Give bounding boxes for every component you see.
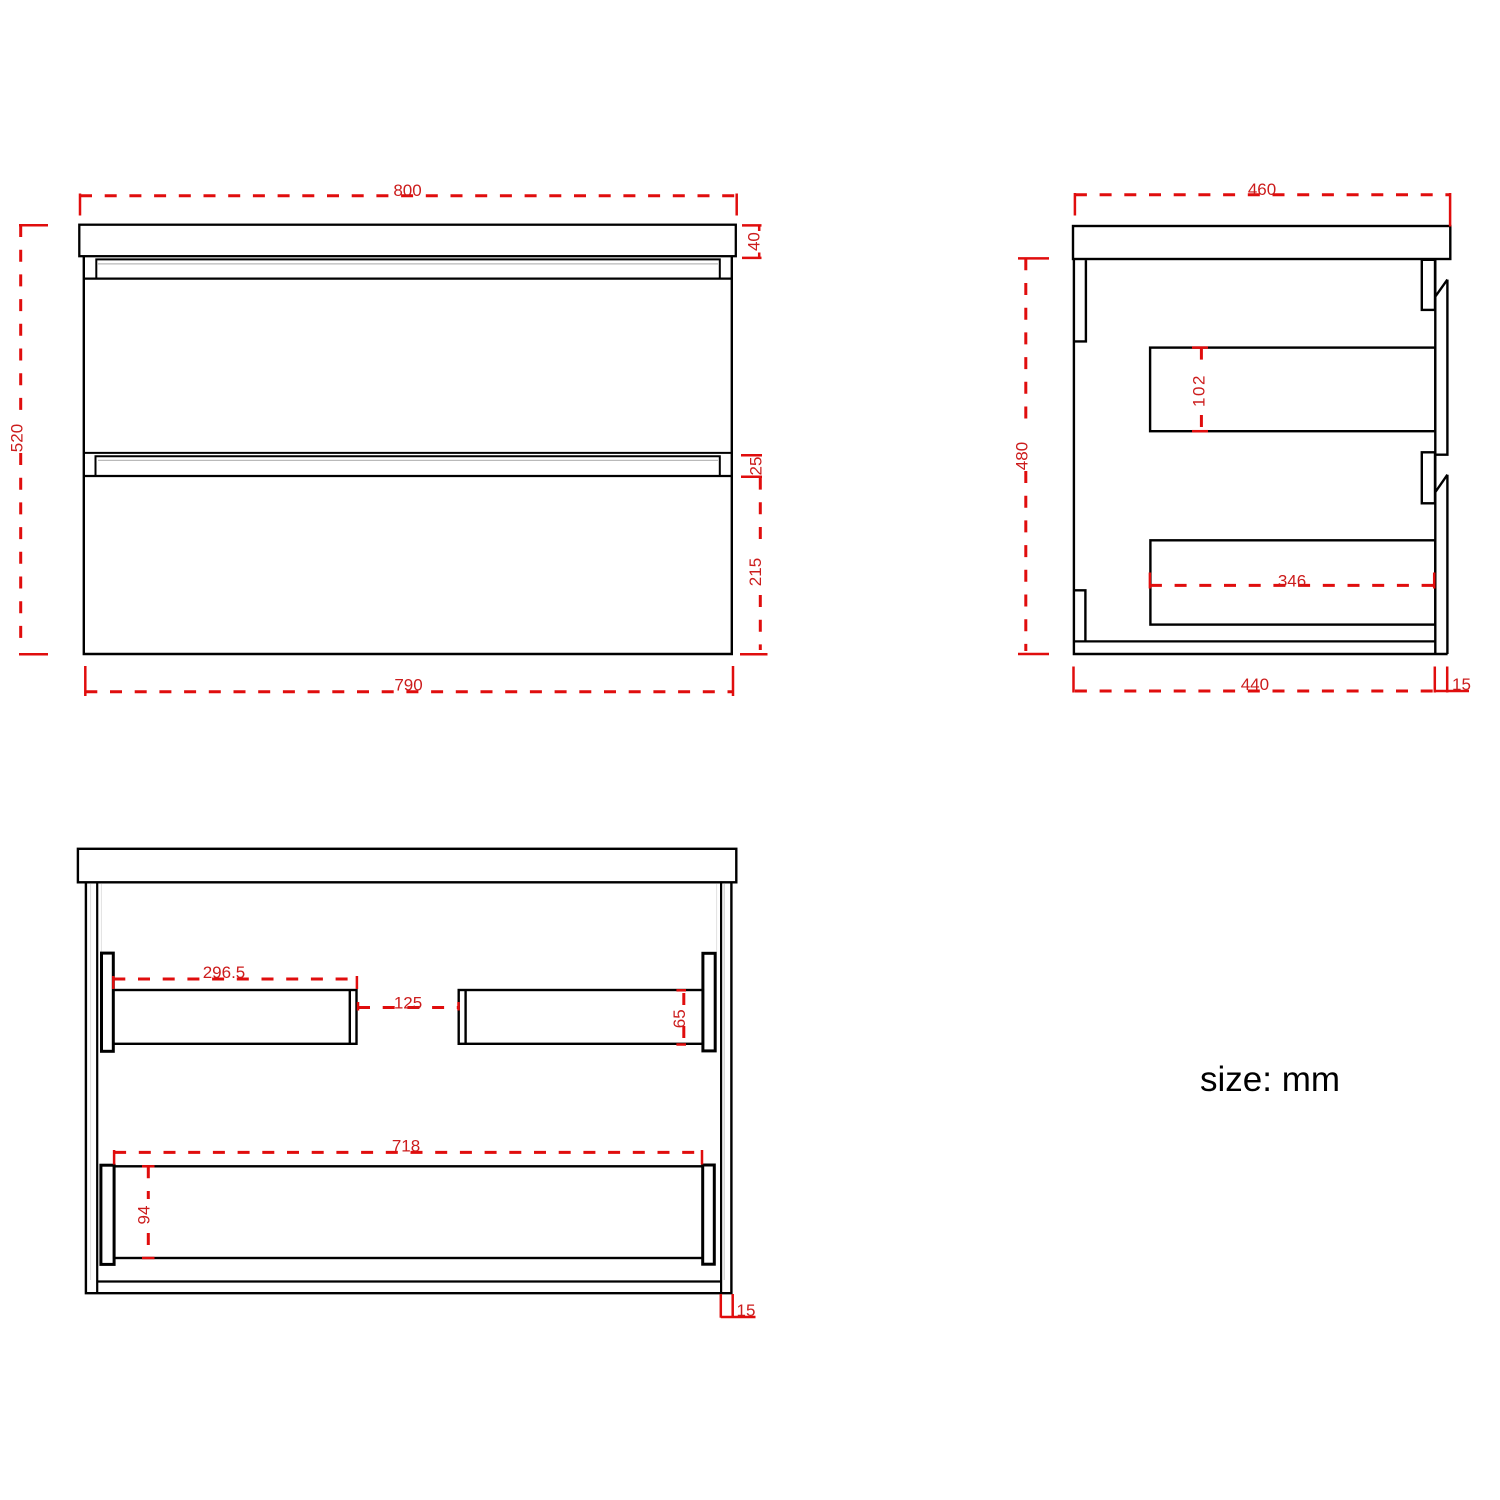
svg-text:460: 460 (1248, 180, 1276, 199)
svg-text:40: 40 (745, 232, 764, 251)
svg-text:800: 800 (393, 181, 421, 200)
svg-text:94: 94 (135, 1206, 154, 1225)
svg-text:480: 480 (1013, 442, 1032, 470)
svg-text:15: 15 (1452, 675, 1471, 694)
svg-text:125: 125 (394, 993, 422, 1012)
svg-text:65: 65 (670, 1009, 689, 1028)
svg-text:346: 346 (1278, 572, 1306, 591)
svg-text:440: 440 (1241, 675, 1269, 694)
svg-text:25: 25 (746, 457, 765, 476)
svg-text:size: mm: size: mm (1200, 1060, 1340, 1099)
svg-text:102: 102 (1190, 374, 1209, 407)
svg-text:790: 790 (394, 676, 422, 695)
svg-text:15: 15 (737, 1301, 756, 1320)
svg-text:296.5: 296.5 (203, 963, 246, 982)
svg-text:718: 718 (392, 1137, 420, 1156)
svg-text:215: 215 (746, 558, 765, 586)
svg-text:520: 520 (8, 424, 27, 452)
